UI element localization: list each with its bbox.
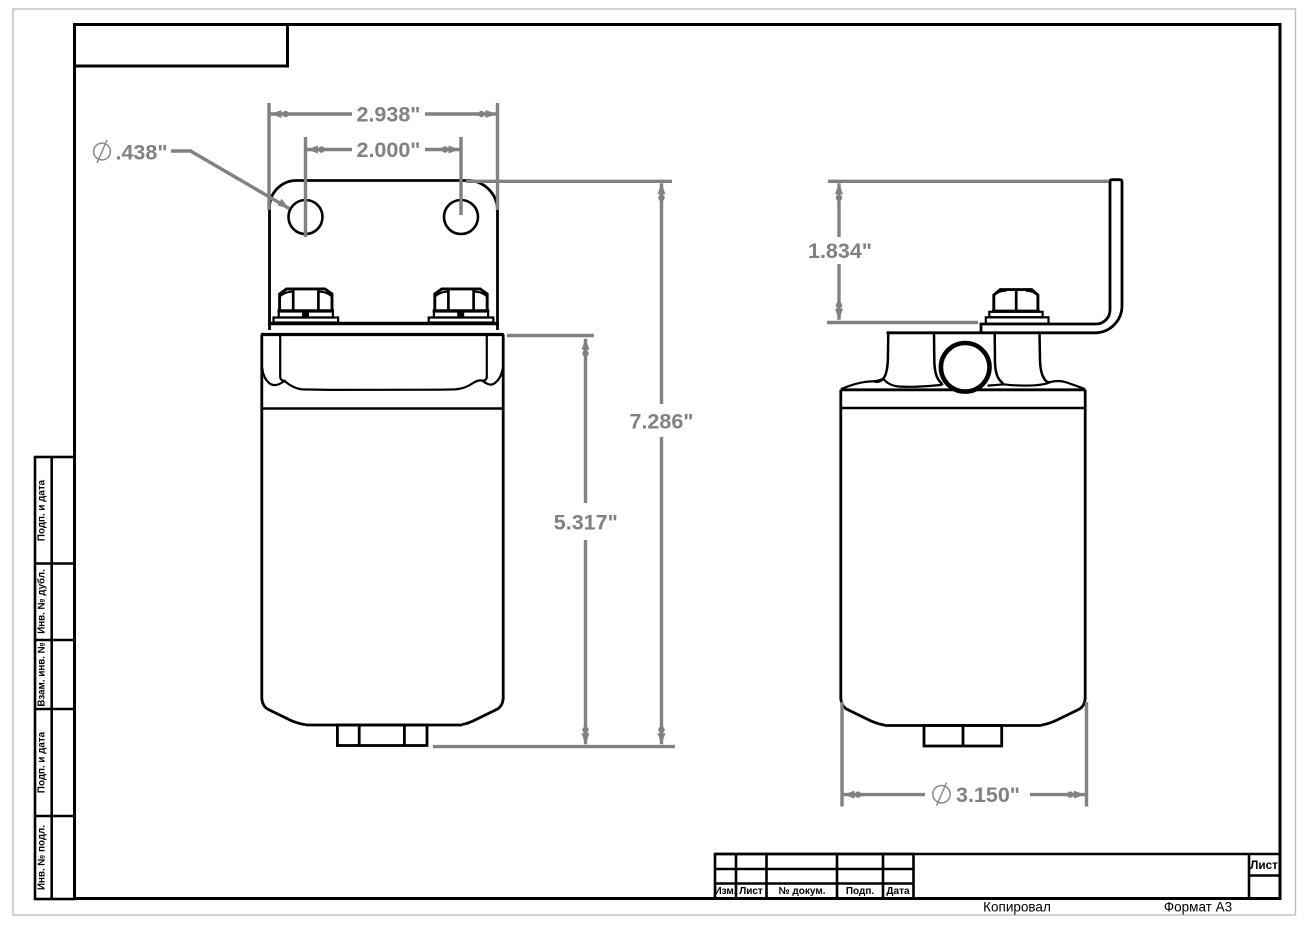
svg-text:1.834": 1.834" xyxy=(808,239,872,263)
svg-text:7.286": 7.286" xyxy=(630,410,694,434)
svg-text:Инв. № подл.: Инв. № подл. xyxy=(37,825,48,890)
svg-text:Взам. инв. №: Взам. инв. № xyxy=(37,642,48,706)
svg-text:Формат А3: Формат А3 xyxy=(1164,900,1232,915)
svg-text:Подп.: Подп. xyxy=(846,886,875,897)
svg-text:2.000": 2.000" xyxy=(357,138,421,162)
svg-text:Лист: Лист xyxy=(1250,858,1278,872)
svg-text:3.150": 3.150" xyxy=(956,783,1020,807)
svg-text:Дата: Дата xyxy=(886,886,910,897)
svg-text:Инв. № дубл.: Инв. № дубл. xyxy=(37,569,48,634)
svg-text:Лист: Лист xyxy=(739,886,763,897)
svg-text:2.938": 2.938" xyxy=(357,103,421,127)
svg-text:.438": .438" xyxy=(116,141,168,165)
svg-text:Подп. и дата: Подп. и дата xyxy=(37,479,48,541)
svg-text:Подп. и дата: Подп. и дата xyxy=(37,731,48,793)
svg-text:Изм.: Изм. xyxy=(714,886,736,897)
svg-text:5.317": 5.317" xyxy=(554,511,618,535)
svg-text:№ докум.: № докум. xyxy=(779,886,826,897)
svg-text:Копировал: Копировал xyxy=(983,900,1051,915)
